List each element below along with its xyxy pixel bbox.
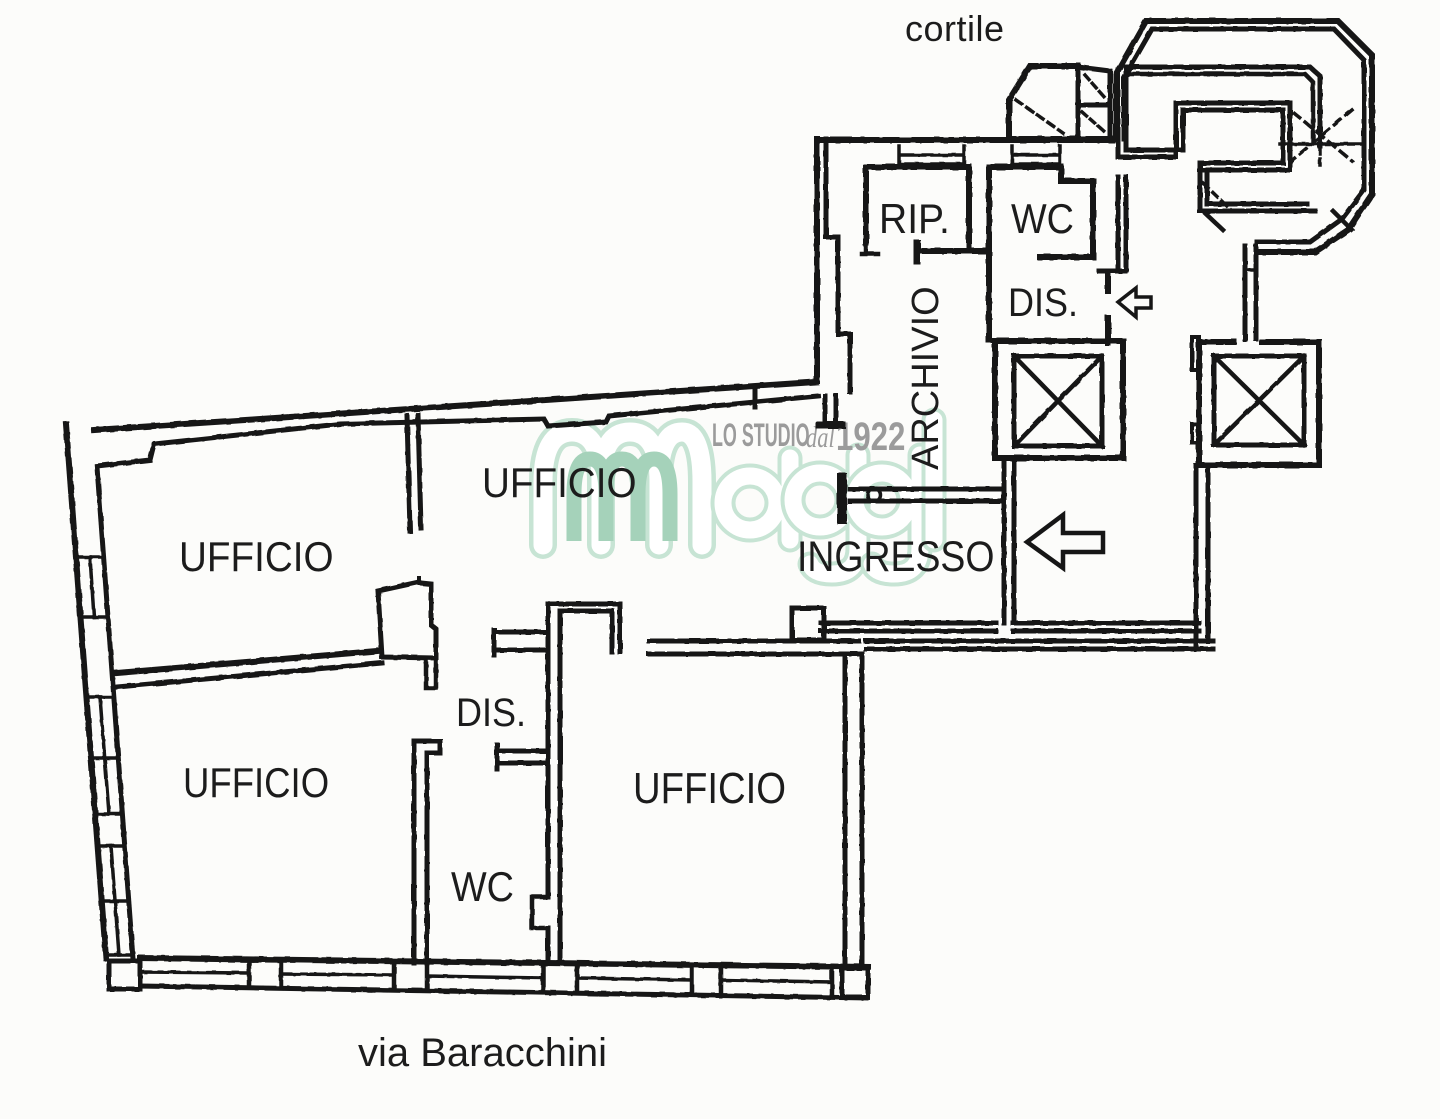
- svg-text:INGRESSO: INGRESSO: [797, 533, 994, 581]
- svg-text:via Baracchini: via Baracchini: [358, 1031, 607, 1075]
- svg-text:UFFICIO: UFFICIO: [633, 764, 786, 813]
- svg-text:DIS.: DIS.: [456, 691, 526, 735]
- svg-text:1922: 1922: [836, 414, 905, 459]
- svg-text:RIP.: RIP.: [879, 195, 950, 243]
- svg-text:DIS.: DIS.: [1008, 281, 1078, 325]
- svg-text:LO STUDIO: LO STUDIO: [712, 419, 810, 454]
- svg-text:cortile: cortile: [905, 8, 1005, 49]
- svg-text:ARCHIVIO: ARCHIVIO: [905, 286, 947, 470]
- svg-text:UFFICIO: UFFICIO: [179, 532, 334, 580]
- svg-text:UFFICIO: UFFICIO: [183, 760, 329, 807]
- svg-text:WC: WC: [451, 864, 514, 910]
- svg-text:UFFICIO: UFFICIO: [482, 458, 637, 506]
- svg-text:WC: WC: [1011, 196, 1074, 242]
